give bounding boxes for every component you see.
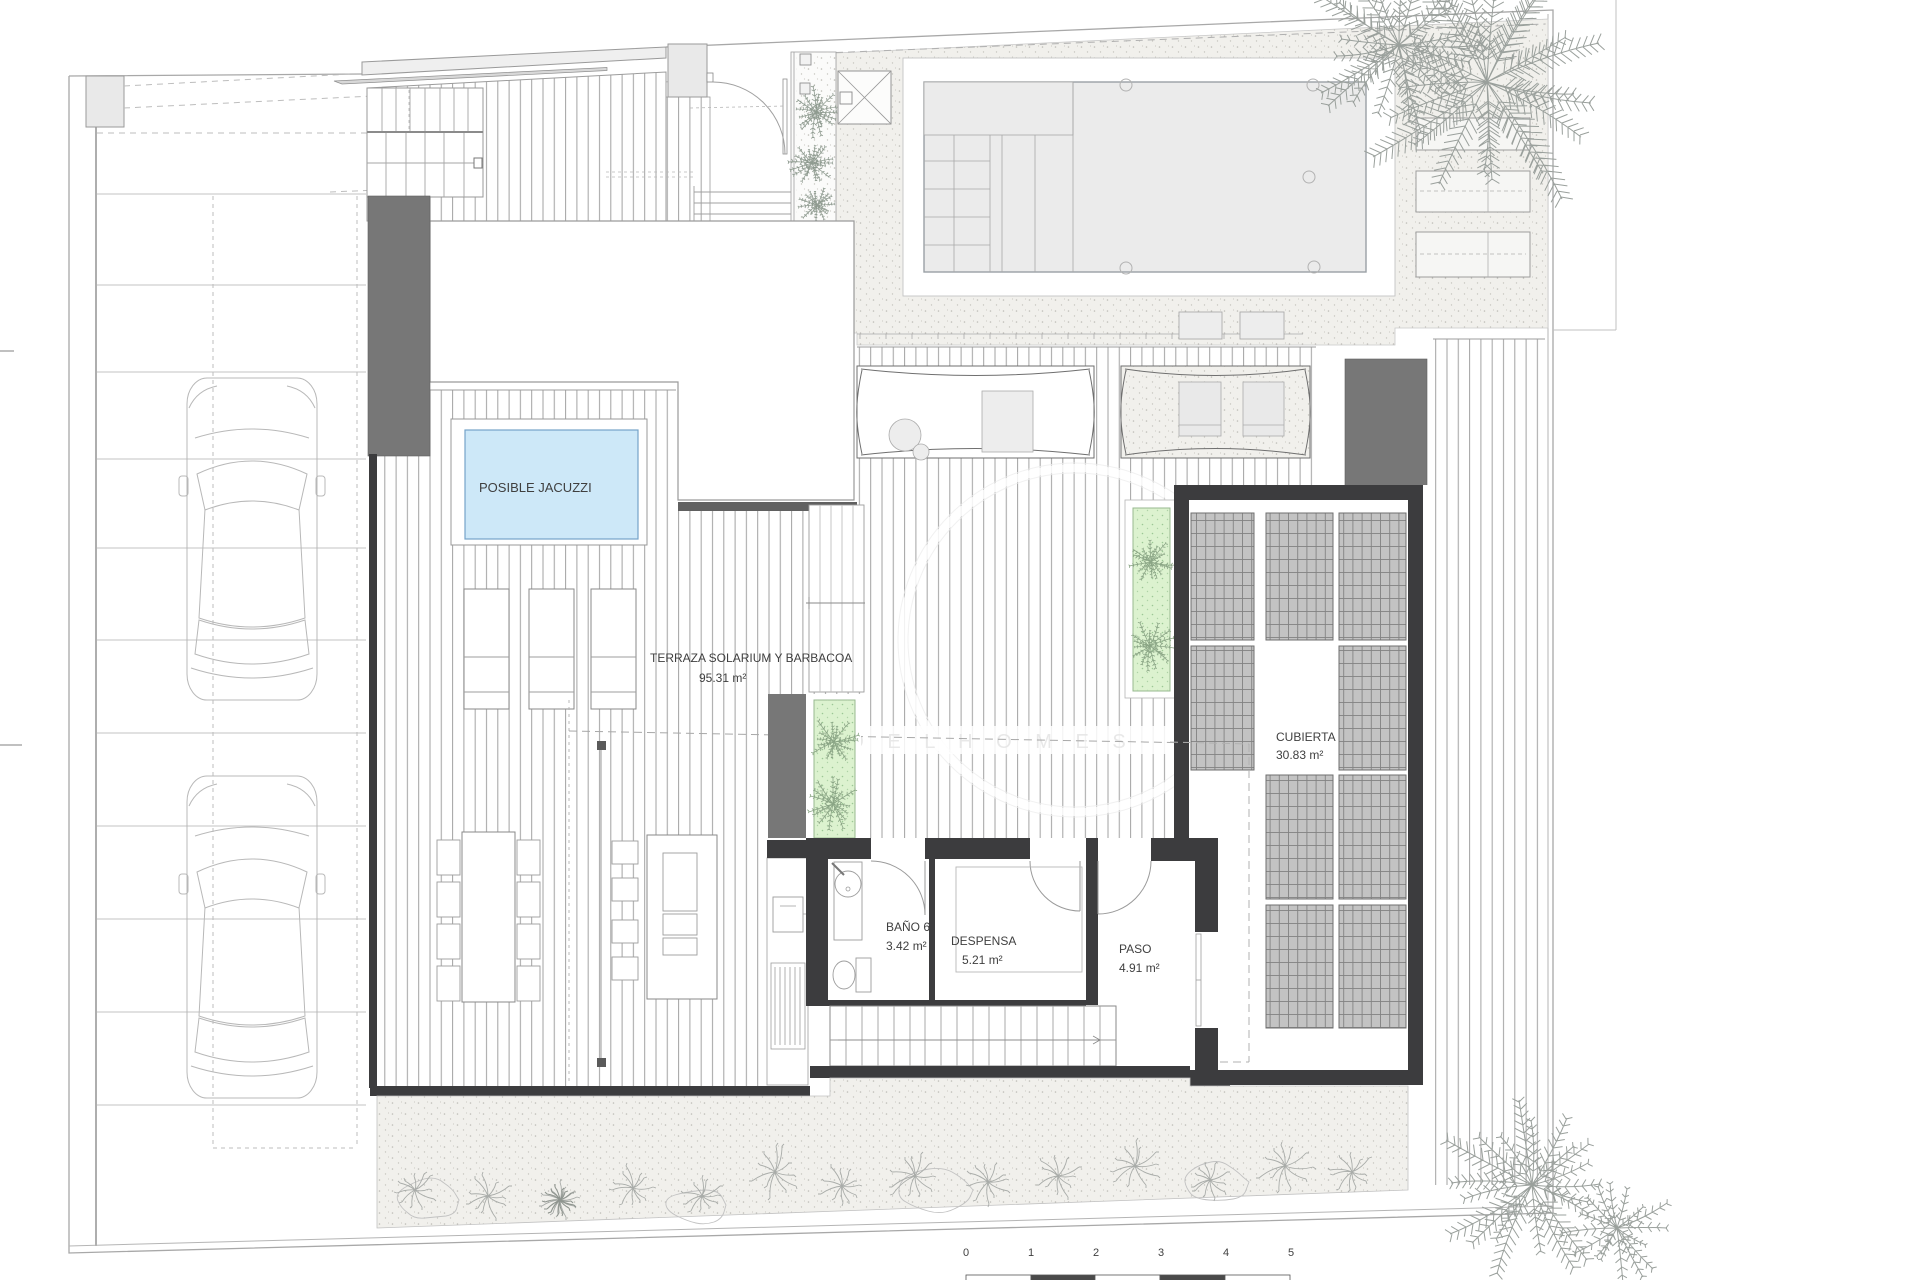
svg-text:3: 3 [1158,1247,1164,1259]
svg-text:BAÑO 6: BAÑO 6 [886,920,930,934]
svg-text:5.21 m²: 5.21 m² [962,953,1003,967]
svg-text:95.31 m²: 95.31 m² [699,671,746,685]
svg-text:0: 0 [963,1247,969,1259]
svg-text:3.42 m²: 3.42 m² [886,939,927,953]
svg-text:PASO: PASO [1119,942,1151,956]
svg-text:2: 2 [1093,1247,1099,1259]
svg-text:DESPENSA: DESPENSA [951,934,1016,948]
svg-text:30.83 m²: 30.83 m² [1276,748,1323,762]
svg-text:TERRAZA SOLARIUM Y BARBACOA: TERRAZA SOLARIUM Y BARBACOA [650,651,852,665]
svg-text:CUBIERTA: CUBIERTA [1276,730,1336,744]
svg-text:4: 4 [1223,1247,1229,1259]
svg-text:5: 5 [1288,1247,1294,1259]
svg-text:POSIBLE JACUZZI: POSIBLE JACUZZI [479,480,592,495]
svg-text:4.91 m²: 4.91 m² [1119,961,1160,975]
svg-text:1: 1 [1028,1247,1034,1259]
